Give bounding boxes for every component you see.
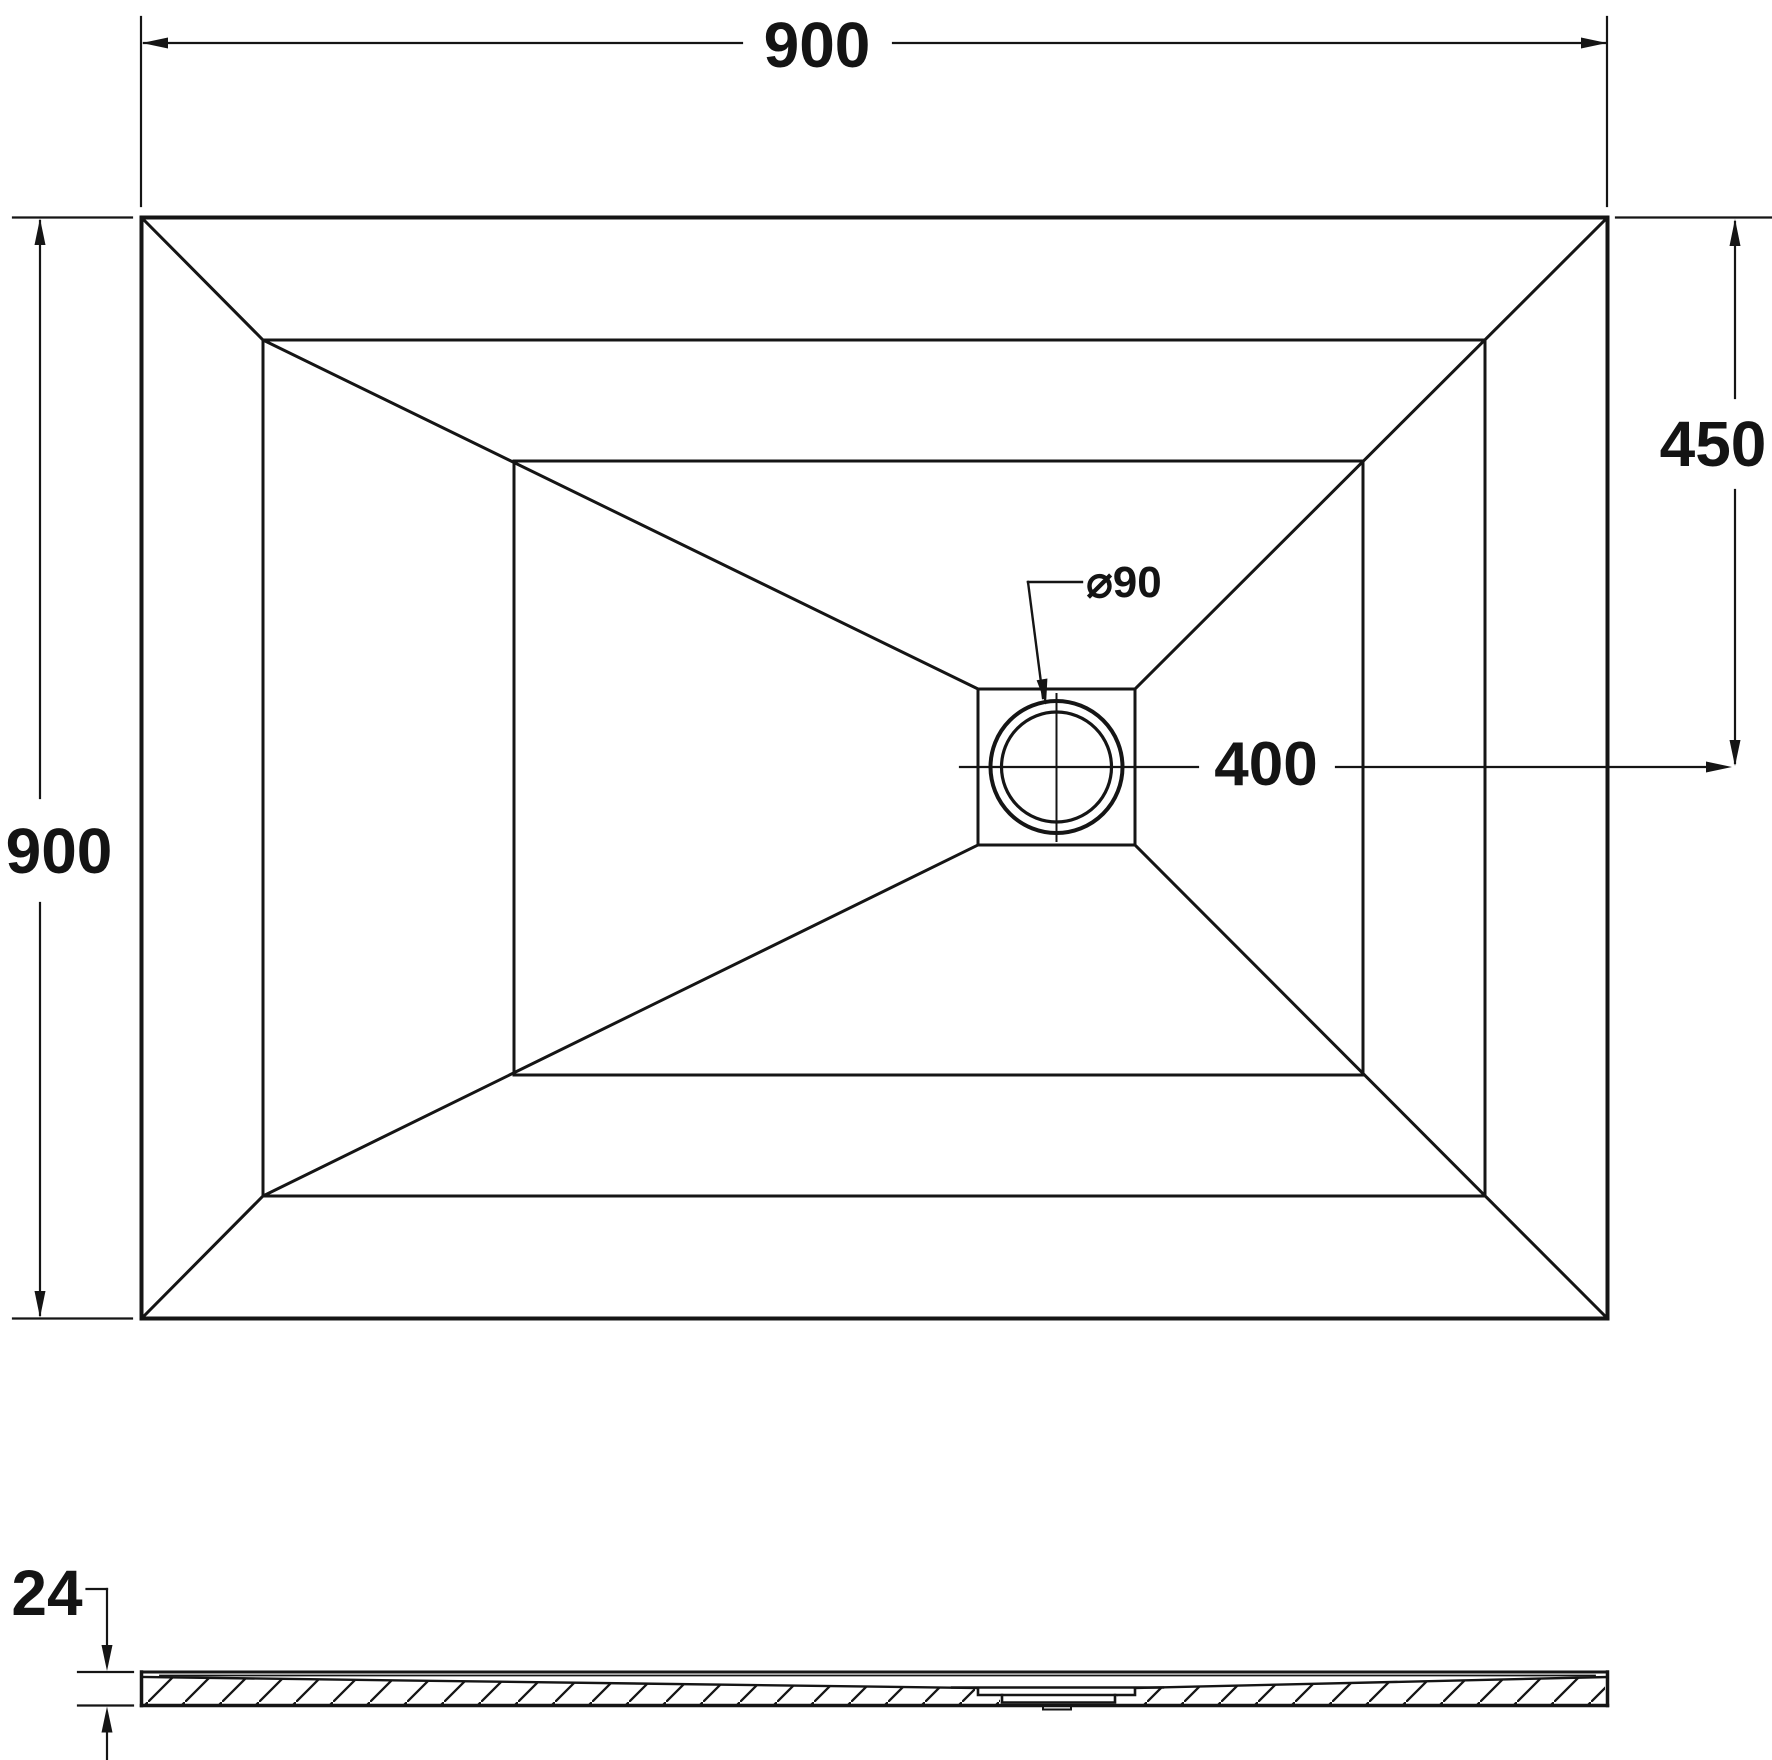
dim-drain-horizontal-offset-label: 400 — [1211, 734, 1320, 796]
dim-width-900 — [141, 17, 1607, 206]
arrowhead-up — [35, 219, 46, 246]
shower-tray-technical-drawing — [0, 0, 1772, 1760]
arrowhead-down — [102, 1645, 113, 1671]
dim-width-label: 900 — [761, 13, 874, 77]
drawing-sheet: 900 900 450 400 ⌀90 24 — [0, 0, 1772, 1760]
section-view — [78, 1589, 1608, 1760]
corner-diagonal-top-right — [1135, 218, 1608, 690]
arrowhead-down — [1730, 740, 1741, 766]
arrowhead-down — [35, 1291, 46, 1318]
arrowhead-up — [1730, 219, 1741, 246]
dim-drain-vertical-450 — [1616, 218, 1771, 767]
dim-depth-label: 900 — [3, 819, 116, 883]
dim-thickness-label: 24 — [8, 1561, 85, 1625]
arrowhead-right — [1581, 38, 1607, 49]
arrowhead-up — [102, 1707, 113, 1733]
arrowhead-right — [1706, 762, 1732, 773]
arrowhead-left — [142, 38, 168, 49]
drain-diameter-leader — [1028, 582, 1082, 705]
corner-diagonal-bottom-left — [142, 845, 979, 1319]
dim-drain-vertical-offset-label: 450 — [1657, 412, 1770, 476]
drain-diameter-label: ⌀90 — [1083, 561, 1164, 605]
corner-diagonal-top-left — [142, 218, 979, 690]
corner-diagonal-bottom-right — [1135, 845, 1608, 1319]
dim-thickness-24 — [78, 1589, 133, 1760]
dim-drain-horizontal-400 — [960, 762, 1732, 773]
plan-view — [13, 17, 1771, 1319]
dim-depth-900 — [13, 218, 132, 1319]
